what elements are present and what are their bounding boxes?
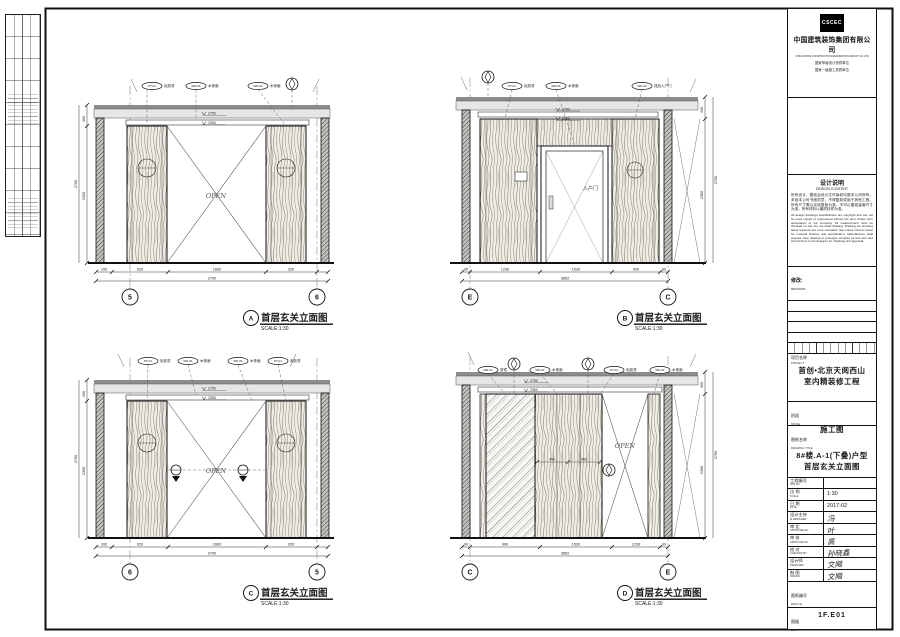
svg-text:2350: 2350: [82, 192, 86, 200]
index-marker: [482, 71, 494, 83]
svg-text:2350: 2350: [208, 121, 216, 125]
svg-text:WD-02: WD-02: [637, 84, 647, 88]
wood-panel: [648, 394, 660, 538]
wood-panel: [535, 394, 602, 538]
svg-text:2350: 2350: [208, 396, 216, 400]
svg-text:WD-01: WD-01: [191, 84, 201, 88]
info-row-designer: 设计师DESIGNER 文飚: [788, 558, 876, 570]
svg-text:1236: 1236: [501, 268, 509, 272]
svg-text:SCALE:1:30: SCALE:1:30: [635, 601, 663, 607]
svg-text:D: D: [623, 590, 628, 597]
ceiling-band: [456, 376, 698, 385]
project-name-line1: 首创•北京天阅西山: [791, 365, 873, 376]
svg-text:6: 6: [128, 570, 132, 577]
svg-text:C: C: [249, 590, 254, 597]
elevation-a: OPEN 2750 2350 PT-01 乳胶漆 WD-01 木饰面 WD-01…: [74, 78, 334, 332]
drawing-c-title: C 首层玄关立面图 SCALE:1:30: [244, 586, 334, 608]
company-qualification-2: 国家一级施工资质单位: [791, 67, 873, 72]
svg-text:400: 400: [700, 107, 704, 113]
dtitle-line1: 8#楼.A-1(下叠)户型: [791, 450, 873, 461]
svg-text:WD-01: WD-01: [535, 368, 545, 372]
info-row-job: 工程编号JOB NO: [788, 478, 876, 490]
open-label: OPEN: [206, 467, 226, 475]
svg-text:100: 100: [101, 543, 107, 547]
svg-text:首层玄关立面图: 首层玄关立面图: [261, 312, 328, 324]
curtain-track: [126, 120, 309, 125]
svg-text:2350: 2350: [700, 191, 704, 199]
svg-text:MR-01: MR-01: [483, 368, 492, 372]
svg-text:2750: 2750: [208, 112, 216, 116]
wood-panel: [127, 401, 167, 538]
wood-panel: [127, 126, 167, 263]
ceiling-slab: [94, 380, 330, 384]
elevation-d: 450 450 OPEN 2750 2350 MR-01 茶镜: [450, 352, 718, 607]
svg-text:450: 450: [549, 458, 555, 462]
drawing-sheet: { "company": { "logo": "CSCEC", "name_cn…: [0, 0, 900, 637]
svg-text:5: 5: [315, 570, 319, 577]
title-block: CSCEC 中国建筑装饰集团有限公司 CHINA STATE CONSTRUCT…: [787, 8, 877, 630]
svg-text:木饰面: 木饰面: [552, 367, 563, 372]
svg-text:2750: 2750: [208, 387, 216, 391]
wall-section: [96, 118, 104, 263]
wall-section: [96, 393, 104, 538]
company-logo: CSCEC: [820, 14, 844, 32]
dtitle-label-cn: 图纸名称: [791, 437, 807, 442]
size-section: 图幅 Size: [788, 608, 876, 629]
index-marker: [582, 358, 594, 370]
svg-text:乳胶漆: 乳胶漆: [524, 83, 535, 88]
vertical-dimension: 400 2350 2750: [74, 378, 89, 540]
door-handle: [549, 196, 553, 209]
size-label-cn: 图幅: [791, 619, 799, 624]
drawing-d-title: D 首层玄关立面图 SCALE:1:30: [618, 586, 708, 608]
wood-panel: [480, 119, 537, 263]
svg-text:E: E: [666, 570, 671, 577]
drawing-title-section: 图纸名称 DRAWING TITLE 8#楼.A-1(下叠)户型 首层玄关立面图: [788, 426, 876, 478]
svg-text:首层玄关立面图: 首层玄关立面图: [261, 587, 328, 599]
svg-text:乳胶漆: 乳胶漆: [626, 367, 637, 372]
door-label: 入户门: [583, 185, 598, 192]
svg-text:SCALE:1:30: SCALE:1:30: [261, 601, 289, 607]
notes-body-cn: 所有设计、图纸及设计文件版权均属本公司所有，未经本公司书面同意，不得复制或用于其…: [791, 193, 873, 212]
dimension-row: 90 906 1530 1236 90 3852: [460, 543, 670, 559]
elevation-c: OPEN 2750 2350 PT-01 乳胶漆 WD-01: [74, 354, 334, 607]
stage-section: 阶段 STAGE 施工图: [788, 402, 876, 426]
dwg-no-label-en: DWG No.: [791, 602, 873, 606]
svg-text:90: 90: [464, 268, 468, 272]
switch-panel: [515, 172, 527, 181]
svg-text:木饰面: 木饰面: [672, 367, 683, 372]
svg-text:2750: 2750: [714, 176, 718, 184]
design-notes: 设计说明 DESIGN CONTENT 所有设计、图纸及设计文件版权均属本公司所…: [788, 175, 876, 266]
svg-text:木饰面: 木饰面: [250, 358, 261, 363]
svg-text:2750: 2750: [74, 180, 78, 188]
drawing-b-title: B 首层玄关立面图 SCALE:1:30: [618, 311, 708, 333]
project-name-line2: 室内精装修工程: [791, 376, 873, 387]
svg-text:90: 90: [662, 268, 666, 272]
svg-text:茶镜: 茶镜: [500, 367, 508, 372]
open-label: OPEN: [615, 442, 635, 450]
svg-text:400: 400: [700, 382, 704, 388]
svg-text:2750: 2750: [74, 455, 78, 463]
wood-panel: [266, 401, 306, 538]
svg-text:1660: 1660: [213, 268, 221, 272]
svg-text:C: C: [665, 295, 670, 302]
svg-text:906: 906: [633, 268, 639, 272]
svg-text:400: 400: [82, 116, 86, 122]
svg-text:木饰面: 木饰面: [200, 358, 211, 363]
stage-label-cn: 阶段: [791, 413, 799, 418]
svg-text:WD-01: WD-01: [183, 359, 193, 363]
svg-text:90: 90: [464, 543, 468, 547]
wood-trim: [480, 394, 486, 538]
revision-label-cn: 修改:: [791, 278, 803, 284]
project-section: 项目名称 PROJECT 首创•北京天阅西山 室内精装修工程: [788, 354, 876, 402]
material-tags: PT-01 乳胶漆 WD-01 木饰面 WD-01 木饰面 PT-01 乳胶漆: [118, 354, 301, 401]
vertical-dimension: 400 2350 2750: [74, 103, 89, 265]
svg-text:PT-01: PT-01: [274, 359, 282, 363]
info-row-lead-designer: 设计主持M.DESIGNER 冯: [788, 512, 876, 524]
info-row-reviewed: 审 核APPROVED BY 高: [788, 535, 876, 547]
door-transom: [537, 119, 612, 146]
company-header: CSCEC 中国建筑装饰集团有限公司 CHINA STATE CONSTRUCT…: [788, 9, 876, 98]
svg-text:木饰面: 木饰面: [208, 83, 219, 88]
svg-text:A: A: [249, 315, 254, 322]
ceiling-slab: [94, 105, 330, 109]
drawing-a-title: A 首层玄关立面图 SCALE:1:30: [244, 311, 334, 333]
notes-title-cn: 设计说明: [791, 178, 873, 187]
svg-text:2700: 2700: [208, 277, 216, 281]
svg-text:2350: 2350: [700, 466, 704, 474]
svg-text:5: 5: [128, 295, 132, 302]
svg-text:2350: 2350: [82, 467, 86, 475]
svg-text:SCALE:1:30: SCALE:1:30: [261, 326, 289, 332]
svg-text:B: B: [623, 315, 628, 322]
svg-text:6: 6: [315, 295, 319, 302]
svg-text:320: 320: [288, 543, 294, 547]
svg-text:乳胶漆: 乳胶漆: [290, 358, 301, 363]
dtitle-line2: 首层玄关立面图: [791, 461, 873, 472]
svg-text:PT-01: PT-01: [148, 84, 156, 88]
revision-row: [788, 333, 876, 344]
info-table: 工程编号JOB NO 比 例SCALE 1:30 日 期DATE 2017-02…: [788, 478, 876, 583]
svg-text:1530: 1530: [572, 543, 580, 547]
curtain-track: [126, 395, 309, 400]
curtain-track: [478, 387, 662, 392]
blank-panel: [788, 98, 876, 175]
svg-text:906: 906: [502, 543, 508, 547]
index-marker: [286, 78, 298, 90]
svg-text:400: 400: [82, 391, 86, 397]
index-marker: [603, 464, 615, 476]
dwg-no-section: 图纸编号 DWG No. 1F.E01: [788, 582, 876, 608]
plan-canvas: OPEN 2750 2350 PT-01 乳胶漆 WD-01 木饰面 WD-01…: [0, 0, 900, 637]
svg-text:1236: 1236: [632, 543, 640, 547]
svg-text:3852: 3852: [561, 552, 569, 556]
svg-text:620: 620: [137, 268, 143, 272]
info-row-drawn: 制 图DRAWN 文飚: [788, 570, 876, 582]
svg-text:PT-01: PT-01: [610, 368, 618, 372]
info-row-scale: 比 例SCALE 1:30: [788, 489, 876, 501]
svg-text:1660: 1660: [213, 543, 221, 547]
svg-text:90: 90: [662, 543, 666, 547]
svg-text:2700: 2700: [208, 552, 216, 556]
wall-section: [664, 110, 672, 263]
svg-text:2750: 2750: [714, 451, 718, 459]
svg-text:乳胶漆: 乳胶漆: [160, 358, 171, 363]
svg-text:WD-01: WD-01: [233, 359, 243, 363]
vertical-dimension: 400 2350 2750: [700, 370, 718, 540]
svg-text:E: E: [468, 295, 473, 302]
svg-text:首层玄关立面图: 首层玄关立面图: [635, 312, 702, 324]
size-label-en: Size: [791, 628, 873, 632]
svg-text:PT-01: PT-01: [144, 359, 152, 363]
company-name-cn: 中国建筑装饰集团有限公司: [791, 34, 873, 54]
dwg-no-label-cn: 图纸编号: [791, 593, 807, 598]
ceiling-band: [456, 101, 698, 110]
svg-text:木饰面: 木饰面: [568, 83, 579, 88]
svg-text:450: 450: [581, 458, 587, 462]
svg-text:2350: 2350: [530, 388, 538, 392]
svg-text:SCALE:1:30: SCALE:1:30: [635, 326, 663, 332]
svg-text:WD-01: WD-01: [253, 84, 263, 88]
revision-row: [788, 301, 876, 312]
svg-text:乳胶漆: 乳胶漆: [164, 83, 175, 88]
company-name-en: CHINA STATE CONSTRUCTION DECORATION GROU…: [793, 55, 871, 58]
company-qualification-1: 国家甲级设计资质单位: [791, 60, 873, 65]
open-label: OPEN: [206, 192, 226, 200]
svg-text:PT-01: PT-01: [508, 84, 516, 88]
revision-row: [788, 312, 876, 323]
notes-body-en: All design drawings specifications are c…: [791, 214, 873, 244]
dimension-row: 100 620 1660 320 2700: [94, 268, 330, 284]
vertical-dimension: 400 2350 2750: [700, 95, 718, 265]
wood-panel: [266, 126, 306, 263]
svg-text:1530: 1530: [572, 268, 580, 272]
index-marker: [508, 358, 520, 370]
svg-text:100: 100: [101, 268, 107, 272]
dimension-row: 100 620 1660 320 2700: [94, 543, 330, 559]
wall-section: [664, 385, 672, 538]
svg-text:木饰面: 木饰面: [270, 83, 281, 88]
svg-text:2750: 2750: [530, 379, 538, 383]
wall-section: [321, 393, 329, 538]
ceiling-slab: [456, 97, 698, 101]
elevation-b: 入户门 2750 2350 PT-01 乳胶漆 WD-01 木饰面: [450, 71, 718, 332]
svg-text:320: 320: [288, 268, 294, 272]
svg-text:WD-01: WD-01: [655, 368, 665, 372]
svg-text:首层玄关立面图: 首层玄关立面图: [635, 587, 702, 599]
notes-title-en: DESIGN CONTENT: [791, 187, 873, 191]
svg-text:WD-01: WD-01: [551, 84, 561, 88]
revision-row: [788, 291, 876, 302]
svg-text:C: C: [467, 570, 472, 577]
revision-row: [788, 343, 876, 353]
wall-section: [462, 110, 470, 263]
wall-section: [462, 385, 470, 538]
wall-section: [321, 118, 329, 263]
revision-row: [788, 322, 876, 333]
revision-block: 修改: REVISION: [788, 267, 876, 343]
dimension-row: 90 1236 1530 906 90 3852: [460, 268, 670, 284]
mirror-panel: [486, 394, 535, 538]
svg-text:3852: 3852: [561, 277, 569, 281]
svg-text:620: 620: [137, 543, 143, 547]
material-tags: PT-01 乳胶漆 WD-01 木饰面 WD-01 木饰面: [131, 78, 319, 126]
svg-text:成品入户门: 成品入户门: [654, 83, 672, 88]
wood-panel: [612, 119, 659, 263]
